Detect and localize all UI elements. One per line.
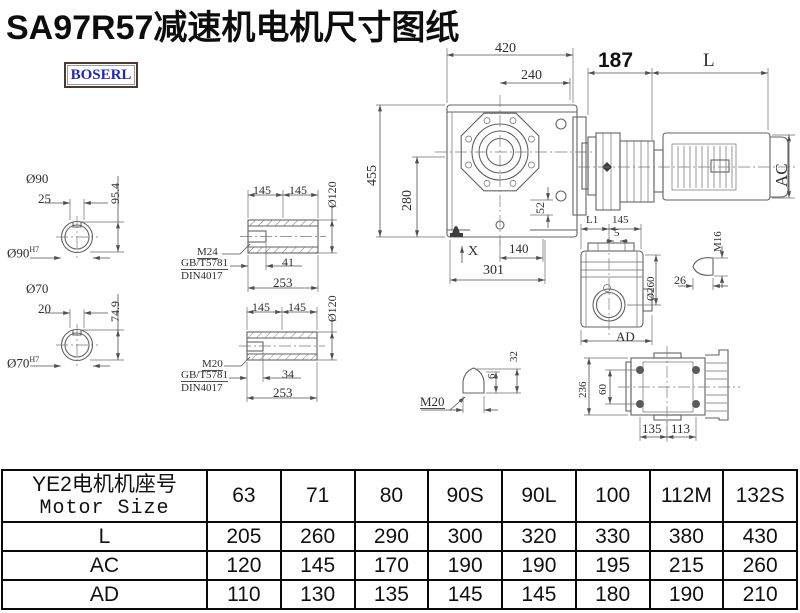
table-row-L: L 205 260 290 300 320 330 380 430 <box>2 522 797 551</box>
cell: 145 <box>428 580 502 609</box>
dim-dia90: Ø90 <box>26 172 48 185</box>
dim-x: X <box>468 245 478 259</box>
dim-M20: M20 <box>420 395 445 409</box>
col-90L: 90L <box>502 470 576 522</box>
dim-h2-145a: 145 <box>252 301 270 313</box>
dim-301: 301 <box>483 264 504 278</box>
cell: 190 <box>502 551 576 580</box>
cell: 110 <box>207 580 281 609</box>
cell: 430 <box>723 522 797 551</box>
col-63: 63 <box>207 470 281 522</box>
dim-side-5: 5 <box>614 228 620 239</box>
dim-6: 6 <box>487 374 498 380</box>
dim-dia260: Ø260 <box>646 277 657 301</box>
cell: 145 <box>502 580 576 609</box>
dim-135: 135 <box>642 422 662 435</box>
header-chinese: YE2电机机座号 <box>3 472 206 497</box>
cell: 145 <box>281 551 355 580</box>
col-100: 100 <box>576 470 650 522</box>
dim-280: 280 <box>401 190 415 211</box>
dim-455: 455 <box>366 165 380 186</box>
dim-h1-std2: DIN4017 <box>181 271 223 282</box>
cell: 260 <box>723 551 797 580</box>
cell: 380 <box>650 522 724 551</box>
col-80: 80 <box>355 470 429 522</box>
col-90S: 90S <box>428 470 502 522</box>
dim-113: 113 <box>671 422 690 435</box>
cell: 320 <box>502 522 576 551</box>
col-132S: 132S <box>723 470 797 522</box>
technical-drawing-canvas <box>0 0 800 468</box>
dim-L: L <box>703 51 715 70</box>
cell: 130 <box>281 580 355 609</box>
col-71: 71 <box>281 470 355 522</box>
dim-side-145: 145 <box>612 215 629 226</box>
cell: 215 <box>650 551 724 580</box>
dim-h1-dia120: Ø120 <box>326 181 338 208</box>
dim-bore70: Ø70H7 <box>7 356 39 369</box>
dim-h1-145b: 145 <box>289 184 307 196</box>
col-112M: 112M <box>650 470 724 522</box>
dim-32: 32 <box>509 351 520 362</box>
dim-h1-std1: GB/T5781 <box>181 258 228 270</box>
row-label-L: L <box>2 522 207 551</box>
dim-L1: L1 <box>586 215 598 226</box>
cell: 205 <box>207 522 281 551</box>
dim-h2-dia120: Ø120 <box>326 295 338 322</box>
cell: 190 <box>650 580 724 609</box>
table-header-cell: YE2电机机座号 Motor Size <box>2 470 207 522</box>
cell: 190 <box>428 551 502 580</box>
table-row-AD: AD 110 130 135 145 145 180 190 210 <box>2 580 797 609</box>
dim-h2-145b: 145 <box>288 301 306 313</box>
cell: 195 <box>576 551 650 580</box>
row-label-AD: AD <box>2 580 207 609</box>
dim-140: 140 <box>509 242 529 255</box>
dim-key20: 20 <box>38 302 51 315</box>
cell: 330 <box>576 522 650 551</box>
dim-bore90: Ø90H7 <box>7 246 39 259</box>
dim-420: 420 <box>495 42 516 56</box>
dim-60: 60 <box>598 384 609 395</box>
table-row-AC: AC 120 145 170 190 190 195 215 260 <box>2 551 797 580</box>
cell: 290 <box>355 522 429 551</box>
dim-h1-41: 41 <box>282 256 294 268</box>
cell: 120 <box>207 551 281 580</box>
dim-h2-34: 34 <box>282 368 294 380</box>
dim-h2-253: 253 <box>273 386 293 399</box>
dim-h1-145a: 145 <box>253 184 271 196</box>
dim-187: 187 <box>598 50 633 71</box>
dim-74-9: 74.9 <box>109 301 121 322</box>
header-english: Motor Size <box>3 497 206 521</box>
cell: 170 <box>355 551 429 580</box>
dim-h2-std2: DIN4017 <box>181 383 223 394</box>
drawing-sheet: SA97R57减速机电机尺寸图纸 BOSERL <box>0 0 800 613</box>
dim-26: 26 <box>674 274 686 286</box>
motor-size-table: YE2电机机座号 Motor Size 63 71 80 90S 90L 100… <box>1 469 798 610</box>
cell: 180 <box>576 580 650 609</box>
cell: 135 <box>355 580 429 609</box>
dim-52: 52 <box>534 202 546 214</box>
dim-AC: AC <box>773 163 790 187</box>
table-header-row: YE2电机机座号 Motor Size 63 71 80 90S 90L 100… <box>2 470 797 522</box>
row-label-AC: AC <box>2 551 207 580</box>
cell: 260 <box>281 522 355 551</box>
dim-dia70: Ø70 <box>26 282 48 295</box>
main-view <box>376 48 592 284</box>
dim-key25: 25 <box>38 192 51 205</box>
dim-h2-std1: GB/T5781 <box>181 370 228 382</box>
dim-240: 240 <box>521 69 542 83</box>
cell: 300 <box>428 522 502 551</box>
cell: 210 <box>723 580 797 609</box>
dim-AD: AD <box>616 330 635 343</box>
dim-h1-253: 253 <box>273 276 293 289</box>
dim-95-4: 95.4 <box>109 183 121 204</box>
dim-236: 236 <box>578 382 589 399</box>
dim-M16: M16 <box>713 231 724 252</box>
motor-view <box>578 68 798 210</box>
